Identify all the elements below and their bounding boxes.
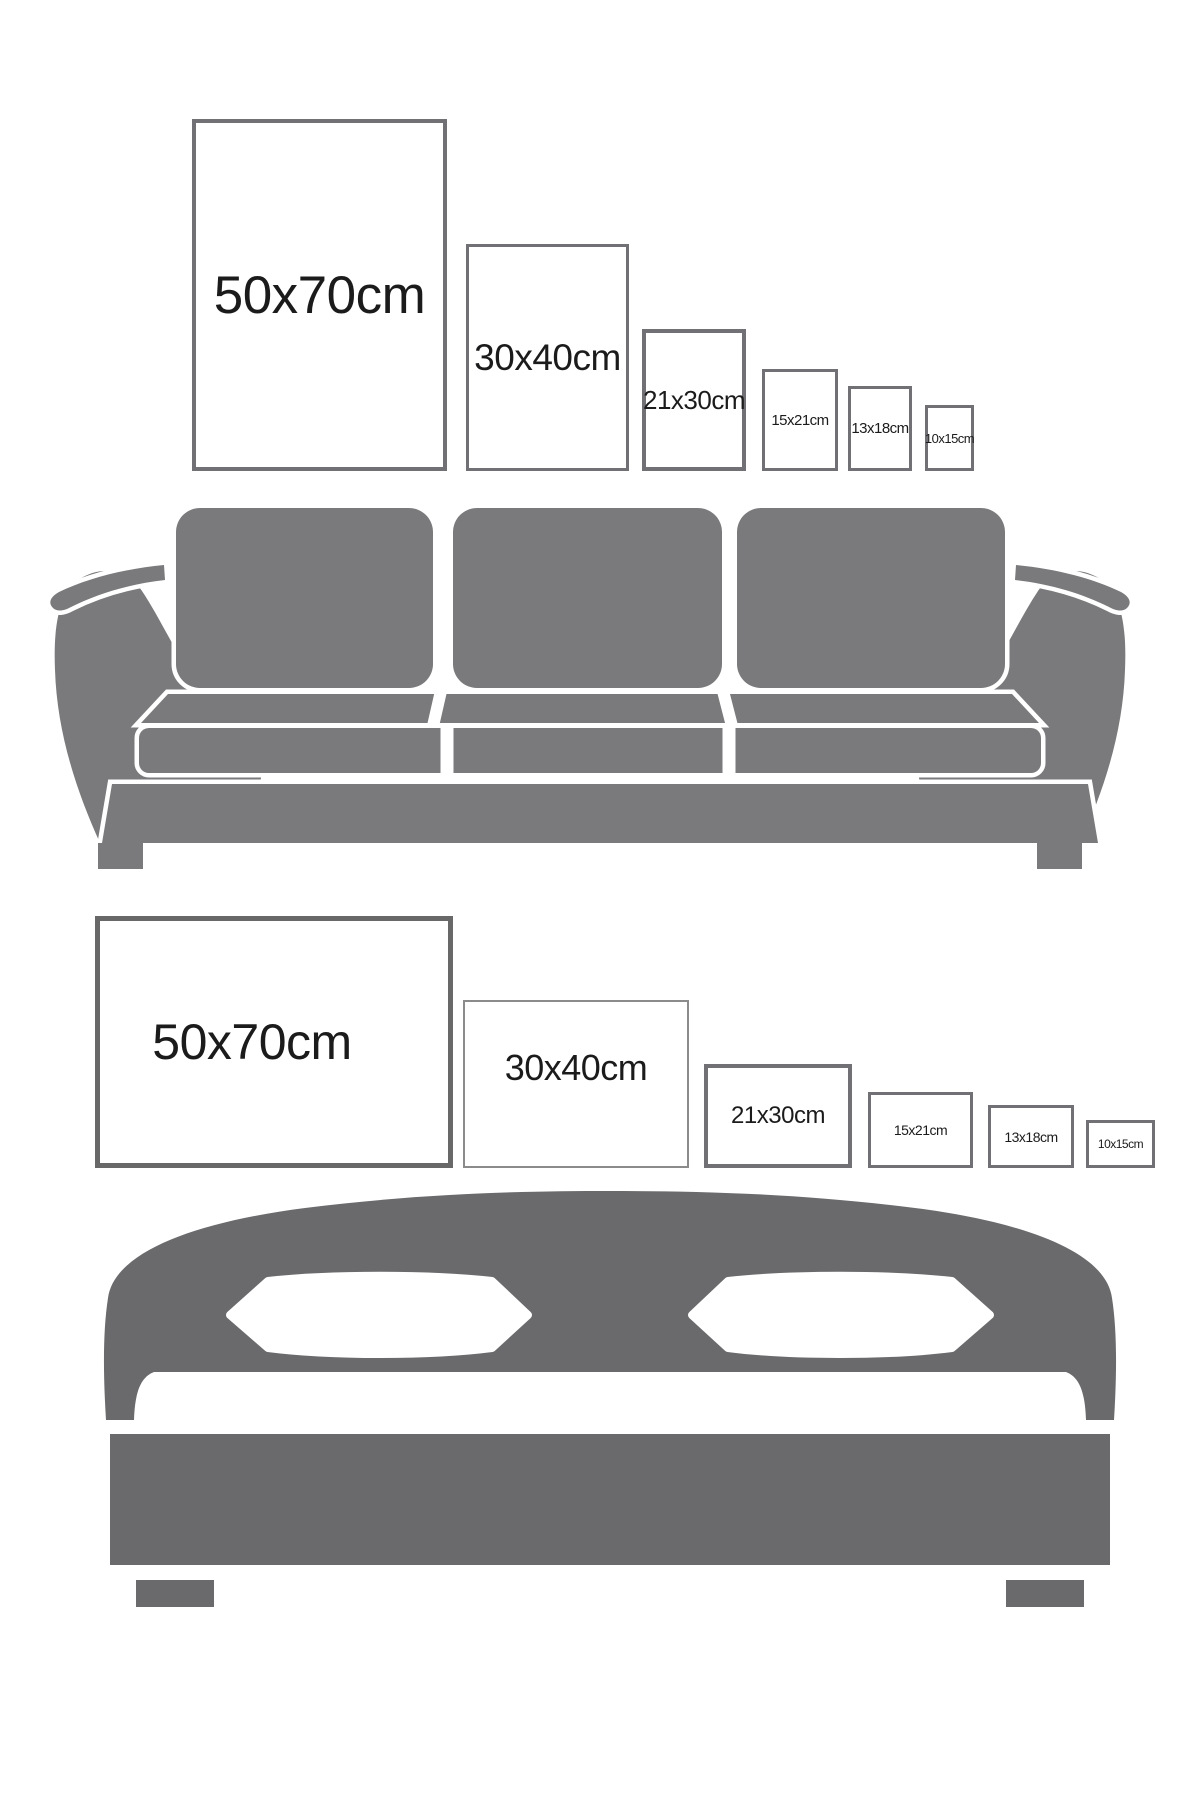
- frame-label: 21x30cm: [643, 385, 745, 416]
- frame-label: 21x30cm: [731, 1102, 825, 1130]
- frame-portrait-15x21: 15x21cm: [762, 369, 838, 471]
- frame-label: 13x18cm: [851, 420, 908, 437]
- frame-label: 15x21cm: [894, 1122, 947, 1138]
- frame-label: 10x15cm: [925, 431, 974, 446]
- frame-label: 50x70cm: [214, 265, 426, 326]
- frame-landscape-13x18: 13x18cm: [988, 1105, 1074, 1168]
- frame-label: 10x15cm: [1098, 1137, 1143, 1151]
- frame-label: 50x70cm: [152, 1013, 351, 1071]
- frame-landscape-10x15: 10x15cm: [1086, 1120, 1155, 1168]
- frame-label: 13x18cm: [1004, 1129, 1057, 1145]
- frame-landscape-30x40: 30x40cm: [463, 1000, 689, 1168]
- frame-portrait-13x18: 13x18cm: [848, 386, 912, 471]
- frame-landscape-15x21: 15x21cm: [868, 1092, 973, 1168]
- frame-portrait-30x40: 30x40cm: [466, 244, 629, 471]
- bed-icon: [0, 1180, 1200, 1740]
- frame-landscape-50x70: 50x70cm: [95, 916, 453, 1168]
- frame-landscape-21x30: 21x30cm: [704, 1064, 852, 1168]
- frame-label: 15x21cm: [771, 412, 828, 429]
- frame-label: 30x40cm: [505, 1047, 648, 1089]
- frame-portrait-21x30: 21x30cm: [642, 329, 746, 471]
- frame-portrait-50x70: 50x70cm: [192, 119, 447, 471]
- frame-label: 30x40cm: [474, 337, 621, 379]
- sofa-icon: [0, 480, 1200, 900]
- frame-portrait-10x15: 10x15cm: [925, 405, 974, 471]
- poster-size-guide: 50x70cm 30x40cm 21x30cm 15x21cm 13x18cm …: [0, 0, 1200, 1800]
